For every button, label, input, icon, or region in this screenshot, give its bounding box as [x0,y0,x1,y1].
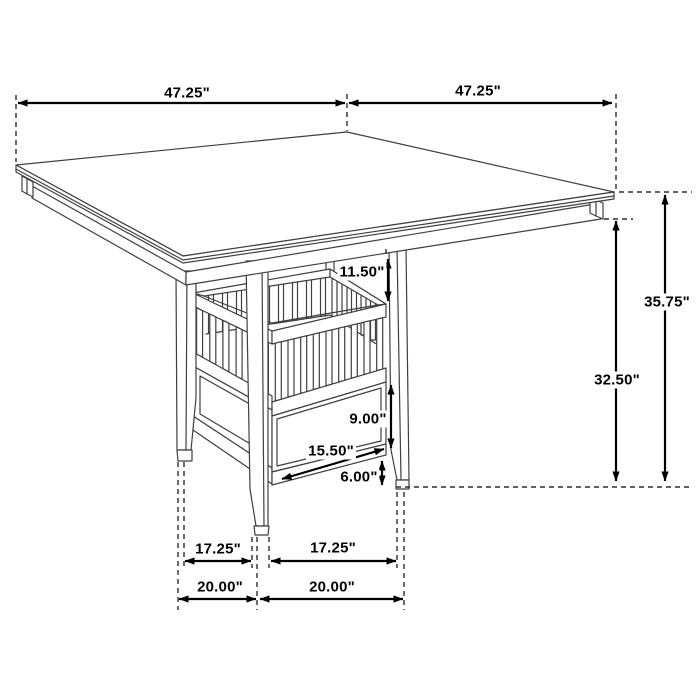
dim-label-drawer-width: 15.50" [306,443,356,460]
dim-label-overall-height: 35.75" [642,294,692,311]
dim-label-leg-outer-right: 20.00" [307,579,357,596]
dim-label-leg-clear-left: 17.25" [193,541,243,558]
front-leg [246,261,269,535]
dim-label-basket-inset: 11.50" [337,264,386,281]
tabletop [16,132,614,263]
dim-label-base-clearance: 6.00" [338,469,379,486]
dim-label-tabletop-width-left: 47.25" [162,85,212,102]
right-leg [389,247,409,489]
dim-label-leg-clear-right: 17.25" [308,540,358,557]
dim-label-underside-height: 32.50" [592,372,642,389]
dim-label-leg-outer-left: 20.00" [195,579,245,596]
dim-label-drawer-height: 9.00" [347,411,388,428]
left-leg [176,271,196,461]
dim-label-tabletop-width-right: 47.25" [453,83,503,100]
dimension-diagram: 47.25" 47.25" 35.75" 32.50" 11.50" 9.00"… [0,0,700,700]
